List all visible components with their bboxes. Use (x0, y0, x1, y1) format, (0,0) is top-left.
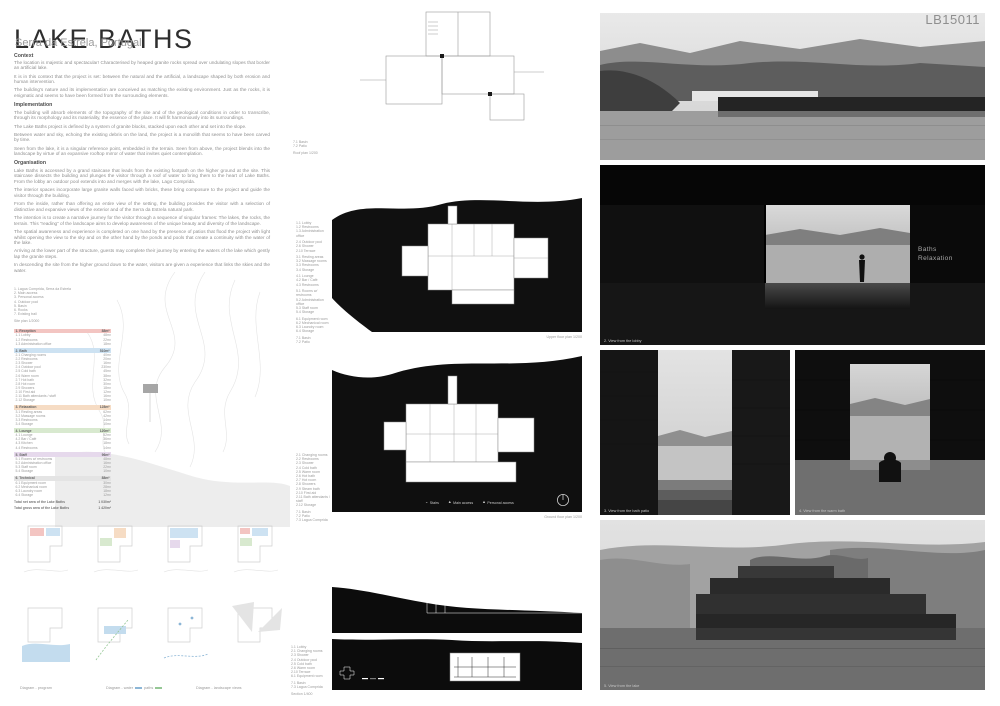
diagram-thumbnail (224, 598, 286, 678)
body-paragraph: Lake Baths is accessed by a grand stairc… (14, 168, 270, 185)
upper-floor-plan-legend: 1.1 Lobby1.2 Restrooms1.3 Administration… (296, 221, 331, 344)
description-text: Context The location is majestic and spe… (14, 49, 270, 276)
section-heading: Implementation (14, 102, 270, 108)
north-arrow-icon (556, 493, 570, 507)
diagram-thumbnail (14, 598, 76, 678)
access-marker: ▲ Personal access (482, 501, 514, 505)
program-label: Total net area of the Lake Baths (14, 500, 65, 504)
legend-item: 7.2 Patio (293, 144, 343, 148)
ground-floor-plan-legend: 2.1 Changing rooms2.2 Restrooms2.3 Showe… (296, 453, 331, 522)
section-heading: Context (14, 53, 270, 59)
program-area: 88m² (102, 476, 110, 480)
program-label: 5. Staff (16, 453, 27, 457)
sections-legend: 1.1 Lobby2.1 Changing rooms2.3 Shower2.4… (291, 645, 331, 696)
diagram-thumbnail (154, 514, 216, 590)
body-paragraph: The interior spaces incorporate large gr… (14, 187, 270, 198)
wall-signage: Baths Relaxation (918, 245, 953, 264)
program-area: 510m² (100, 349, 110, 353)
diagram-caption: Diagram - landscape views (196, 686, 242, 690)
program-area: 10m² (103, 422, 111, 426)
body-paragraph: The intention is to create a narrative j… (14, 215, 270, 226)
program-area: 120m² (100, 429, 110, 433)
upper-floor-plan-label: Upper floor plan 1/200 (500, 335, 582, 339)
program-area: 1 420m² (98, 506, 111, 510)
diagram-thumbnail (14, 514, 76, 590)
render-view-lake: 5. View from the lake (600, 520, 985, 690)
body-paragraph: Arriving at the lower part of the struct… (14, 248, 270, 259)
program-row: Total net area of the Lake Baths 1 030m² (14, 500, 111, 504)
paths-swatch-icon (155, 687, 162, 689)
diagram-thumbnail (84, 598, 146, 678)
program-label: 3.4 Storage (14, 422, 33, 426)
render-view-lobby: Baths Relaxation 2. View from the lobby (600, 165, 985, 345)
legend-item: 7. Existing trail (14, 312, 124, 316)
direction-marker-icon: ▲ (448, 501, 452, 505)
site-plan-legend: 1. Lagoa Comprida, Serra da Estrela2. Ma… (14, 287, 124, 324)
diagram-thumbnail (154, 598, 216, 678)
legend-item: 5.1 Rooms w/ restrooms (296, 289, 331, 297)
section-label: Section 1/400 (291, 692, 331, 696)
program-label: 6.4 Storage (14, 493, 33, 497)
program-area: 88m² (102, 329, 110, 333)
render-caption: 4. View from the warm bath (799, 509, 845, 513)
render-view-patio: 3. View from the bath patio (600, 350, 790, 515)
access-marker: ▲ Main access (448, 501, 473, 505)
body-paragraph: Between water and sky, echoing the exist… (14, 132, 270, 143)
program-area: 128m² (100, 405, 110, 409)
legend-item: 7.3 Lagoa Comprida (291, 685, 331, 689)
upper-floor-plan-drawing (332, 186, 582, 332)
diagram-caption: Diagram - water paths (106, 686, 162, 690)
program-label: 1.3 Administration office (14, 342, 51, 346)
diagram-thumbnail (224, 514, 286, 590)
program-row: 6.4 Storage 12m² (14, 493, 111, 497)
program-row: 1.3 Administration office 18m² (14, 342, 111, 346)
program-label: 4.4 Restrooms (14, 446, 38, 450)
diagram-caption: Diagram - program (20, 686, 52, 690)
diagram-thumbnail (84, 514, 146, 590)
program-row: 5.4 Storage 10m² (14, 469, 111, 473)
plan-access-markers: ⌄ Stairs ▲ Main access ▲ Personal access (425, 501, 514, 505)
render-caption: 5. View from the lake (604, 684, 639, 688)
legend-item: 2.11 Bath attendants / staff (296, 495, 331, 503)
access-marker: ⌄ Stairs (425, 501, 439, 505)
page-subtitle: Serra da Estrela, Portugal (15, 37, 142, 49)
render-caption: 2. View from the lobby (604, 339, 642, 343)
body-paragraph: It is in this context that the project i… (14, 74, 270, 85)
program-label: 1. Reception (16, 329, 36, 333)
legend-item: 1.3 Administration office (296, 229, 331, 237)
body-paragraph: Seen from the lake, it is a singular ref… (14, 146, 270, 157)
marker-label: Stairs (430, 501, 439, 505)
body-paragraph: The building's nature and its implementa… (14, 87, 270, 98)
program-area: 18m² (103, 342, 111, 346)
site-plan-scale: Site plan 1/2000 (14, 319, 124, 323)
body-paragraph: From the inside, rather than offering an… (14, 201, 270, 212)
legend-item: 7.2 Patio (296, 340, 331, 344)
program-area: 96m² (102, 453, 110, 457)
program-label: 2. Bath (16, 349, 27, 353)
diagram-grid (14, 514, 286, 680)
direction-marker-icon: ▲ (482, 501, 486, 505)
roof-plan-label: Roof plan 1/200 (293, 151, 343, 155)
render-view-panorama (600, 13, 985, 160)
render-view-bath: 4. View from the warm bath (795, 350, 985, 515)
program-row: 4.4 Restrooms 14m² (14, 446, 111, 450)
body-paragraph: The location is majestic and spectacular… (14, 60, 270, 71)
roof-plan-legend: 7.1 Basin7.2 Patio Roof plan 1/200 (293, 140, 343, 156)
body-paragraph: The building will absorb elements of the… (14, 110, 270, 121)
program-row: 3.4 Storage 10m² (14, 422, 111, 426)
legend-item: 5.2 Administration office (296, 298, 331, 306)
program-label: Total gross area of the Lake Baths (14, 506, 69, 510)
body-paragraph: The spatial awareness and experience is … (14, 229, 270, 246)
marker-label: Main access (453, 501, 473, 505)
program-area: 1 030m² (98, 500, 111, 504)
board-id: LB15011 (860, 12, 980, 27)
program-area: 14m² (103, 446, 111, 450)
water-swatch-icon (135, 687, 142, 689)
body-paragraph: The Lake Baths project is defined by a s… (14, 124, 270, 130)
competition-board: LAKE BATHS Serra da Estrela, Portugal LB… (0, 0, 1000, 706)
roof-plan-drawing (348, 6, 582, 138)
program-area: 10m² (103, 398, 111, 402)
program-label: 2.12 Storage (14, 398, 35, 402)
section-heading: Organisation (14, 160, 270, 166)
program-area: 10m² (103, 469, 111, 473)
ground-floor-plan-label: Ground floor plan 1/200 (500, 515, 582, 519)
ground-floor-plan-drawing (332, 348, 582, 512)
program-label: 5.4 Storage (14, 469, 33, 473)
sections-drawing (332, 583, 582, 690)
program-label: 4. Lounge (16, 429, 32, 433)
program-row: 2.12 Storage 10m² (14, 398, 111, 402)
direction-marker-icon: ⌄ (425, 501, 428, 505)
program-area: 12m² (103, 493, 111, 497)
program-label: 3. Relaxation (16, 405, 37, 409)
render-caption: 3. View from the bath patio (604, 509, 649, 513)
program-label: 6. Technical (16, 476, 35, 480)
legend-item: 7.3 Lagoa Comprida (296, 518, 331, 522)
program-row: Total gross area of the Lake Baths 1 420… (14, 506, 111, 510)
marker-label: Personal access (487, 501, 513, 505)
program-table: 1. Reception 88m² 1.1 Lobby 48m² 1.2 Res… (14, 326, 111, 510)
